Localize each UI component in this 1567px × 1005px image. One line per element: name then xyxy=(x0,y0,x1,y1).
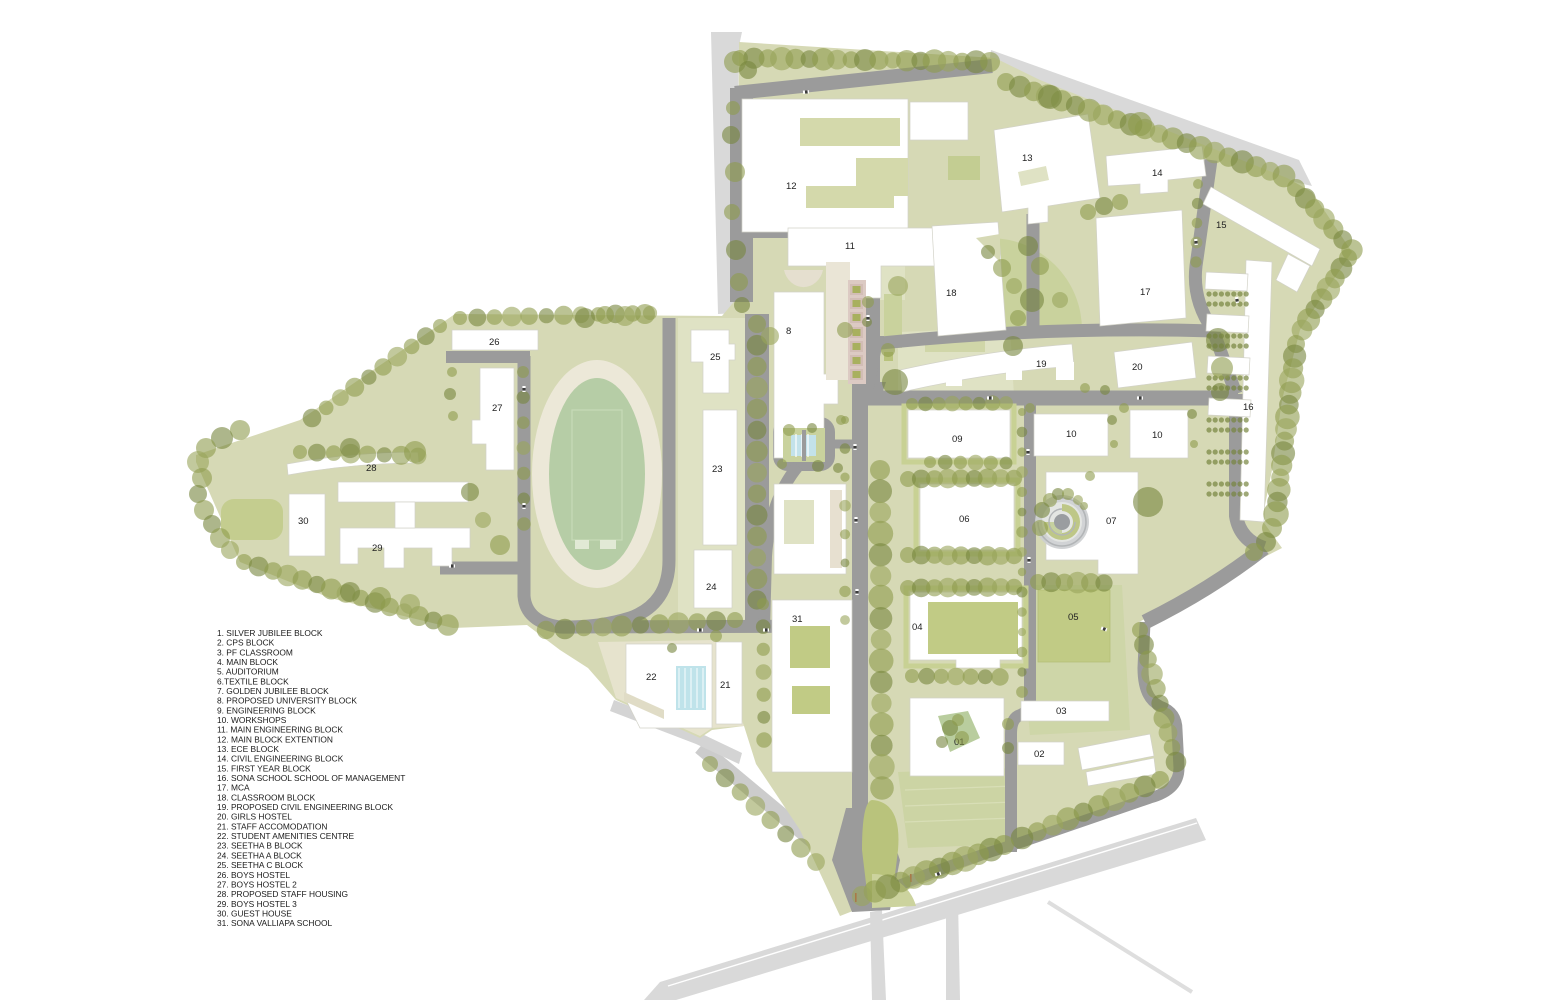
svg-text:11: 11 xyxy=(845,241,855,252)
svg-text:23: 23 xyxy=(712,464,723,475)
svg-text:31: 31 xyxy=(792,614,803,625)
svg-text:20. GIRLS HOSTEL: 20. GIRLS HOSTEL xyxy=(217,812,292,822)
svg-text:30: 30 xyxy=(298,516,309,527)
svg-text:21. STAFF ACCOMODATION: 21. STAFF ACCOMODATION xyxy=(217,821,327,831)
svg-text:30. GUEST HOUSE: 30. GUEST HOUSE xyxy=(217,908,292,918)
svg-text:27. BOYS HOSTEL 2: 27. BOYS HOSTEL 2 xyxy=(217,879,297,889)
svg-text:6.TEXTILE BLOCK: 6.TEXTILE BLOCK xyxy=(217,676,289,686)
svg-text:12: 12 xyxy=(786,181,797,192)
svg-text:24: 24 xyxy=(706,582,717,593)
svg-text:23. SEETHA B BLOCK: 23. SEETHA B BLOCK xyxy=(217,841,303,851)
svg-text:15: 15 xyxy=(1216,220,1227,231)
svg-text:06: 06 xyxy=(959,514,970,525)
svg-text:20: 20 xyxy=(1132,362,1143,373)
svg-text:16. SONA SCHOOL SCHOOL OF MANA: 16. SONA SCHOOL SCHOOL OF MANAGEMENT xyxy=(217,773,405,783)
svg-text:13. ECE BLOCK: 13. ECE BLOCK xyxy=(217,744,279,754)
svg-text:03: 03 xyxy=(1056,706,1067,717)
svg-text:19. PROPOSED CIVIL ENGINEERING: 19. PROPOSED CIVIL ENGINEERING BLOCK xyxy=(217,802,393,812)
svg-text:09: 09 xyxy=(952,434,963,445)
svg-text:26: 26 xyxy=(489,337,500,348)
svg-text:28: 28 xyxy=(366,463,377,474)
svg-text:25: 25 xyxy=(710,352,721,363)
svg-text:05: 05 xyxy=(1068,612,1079,623)
svg-text:14: 14 xyxy=(1152,168,1163,179)
svg-text:04: 04 xyxy=(912,622,923,633)
svg-text:8. PROPOSED UNIVERSITY BLOCK: 8. PROPOSED UNIVERSITY BLOCK xyxy=(217,696,357,706)
svg-text:07: 07 xyxy=(1106,516,1117,527)
svg-text:13: 13 xyxy=(1022,153,1033,164)
svg-text:26. BOYS HOSTEL: 26. BOYS HOSTEL xyxy=(217,870,290,880)
svg-text:18. CLASSROOM BLOCK: 18. CLASSROOM BLOCK xyxy=(217,792,316,802)
svg-text:27: 27 xyxy=(492,403,503,414)
svg-text:14. CIVIL ENGINEERING BLOCK: 14. CIVIL ENGINEERING BLOCK xyxy=(217,754,344,764)
svg-text:10. WORKSHOPS: 10. WORKSHOPS xyxy=(217,715,287,725)
svg-text:7. GOLDEN JUBILEE BLOCK: 7. GOLDEN JUBILEE BLOCK xyxy=(217,686,329,696)
svg-text:19: 19 xyxy=(1036,359,1047,370)
svg-text:10: 10 xyxy=(1066,429,1077,440)
svg-text:1. SILVER JUBILEE BLOCK: 1. SILVER JUBILEE BLOCK xyxy=(217,628,323,638)
svg-text:18: 18 xyxy=(946,288,957,299)
svg-text:12. MAIN BLOCK EXTENTION: 12. MAIN BLOCK EXTENTION xyxy=(217,734,333,744)
svg-text:28. PROPOSED STAFF HOUSING: 28. PROPOSED STAFF HOUSING xyxy=(217,889,348,899)
svg-text:02: 02 xyxy=(1034,749,1045,760)
svg-text:15. FIRST YEAR BLOCK: 15. FIRST YEAR BLOCK xyxy=(217,763,311,773)
svg-text:22. STUDENT AMENITIES CENTRE: 22. STUDENT AMENITIES CENTRE xyxy=(217,831,355,841)
svg-text:2. CPS BLOCK: 2. CPS BLOCK xyxy=(217,638,275,648)
svg-text:24. SEETHA A BLOCK: 24. SEETHA A BLOCK xyxy=(217,850,302,860)
svg-text:5. AUDITORIUM: 5. AUDITORIUM xyxy=(217,667,279,677)
svg-text:21: 21 xyxy=(720,680,731,691)
svg-text:8: 8 xyxy=(786,326,791,337)
svg-text:29. BOYS HOSTEL 3: 29. BOYS HOSTEL 3 xyxy=(217,899,297,909)
svg-text:16: 16 xyxy=(1243,402,1254,413)
svg-text:10: 10 xyxy=(1152,430,1163,441)
svg-text:4. MAIN BLOCK: 4. MAIN BLOCK xyxy=(217,657,278,667)
svg-text:22: 22 xyxy=(646,672,657,683)
svg-text:17: 17 xyxy=(1140,287,1151,298)
svg-text:31. SONA VALLIAPA SCHOOL: 31. SONA VALLIAPA SCHOOL xyxy=(217,918,332,928)
svg-text:11. MAIN ENGINEERING BLOCK: 11. MAIN ENGINEERING BLOCK xyxy=(217,725,343,735)
svg-text:3. PF CLASSROOM: 3. PF CLASSROOM xyxy=(217,647,293,657)
svg-text:25. SEETHA C BLOCK: 25. SEETHA C BLOCK xyxy=(217,860,304,870)
svg-text:17. MCA: 17. MCA xyxy=(217,783,250,793)
svg-text:29: 29 xyxy=(372,543,383,554)
svg-text:9. ENGINEERING BLOCK: 9. ENGINEERING BLOCK xyxy=(217,705,316,715)
